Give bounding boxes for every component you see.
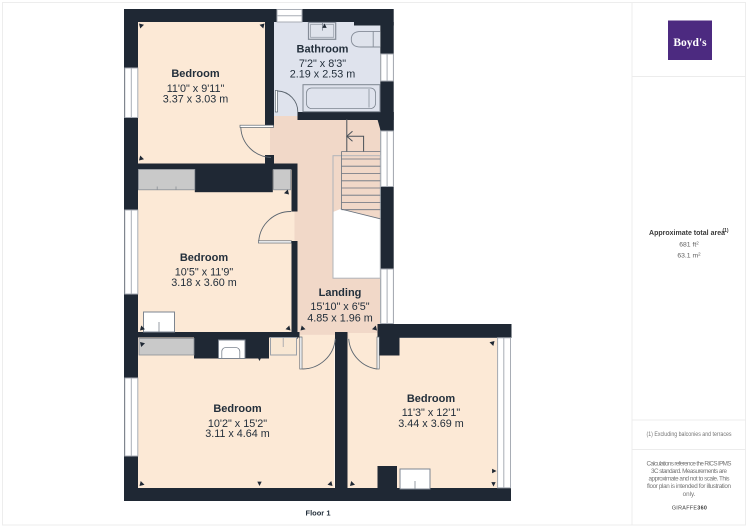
svg-text:only.: only. [683, 491, 696, 498]
svg-text:3.18 x 3.60 m: 3.18 x 3.60 m [171, 277, 236, 289]
svg-text:15'10" x 6'5": 15'10" x 6'5" [310, 301, 369, 313]
svg-text:3.44 x 3.69 m: 3.44 x 3.69 m [398, 418, 463, 430]
svg-text:63.1 m2: 63.1 m2 [677, 252, 701, 260]
svg-text:Approximate total area: Approximate total area [649, 228, 726, 237]
svg-text:Boyd's: Boyd's [673, 37, 707, 49]
svg-text:Landing: Landing [319, 287, 362, 299]
svg-text:Bedroom: Bedroom [213, 403, 262, 415]
svg-text:approximate and not to scale.: approximate and not to scale. This [649, 476, 730, 483]
svg-text:2.19 x 2.53 m: 2.19 x 2.53 m [290, 68, 355, 80]
svg-text:(1): (1) [722, 228, 728, 234]
svg-text:(1) Excluding balconies and te: (1) Excluding balconies and terraces [647, 431, 732, 438]
svg-text:Bedroom: Bedroom [407, 393, 456, 405]
svg-text:4.85 x 1.96 m: 4.85 x 1.96 m [307, 313, 372, 325]
svg-text:Calculations reference the RIC: Calculations reference the RICS IPMS [647, 460, 732, 467]
svg-text:GIRAFFE360: GIRAFFE360 [672, 505, 707, 511]
svg-text:Bedroom: Bedroom [180, 252, 229, 264]
svg-text:681 ft2: 681 ft2 [679, 241, 699, 249]
svg-text:floor plan is intended for ill: floor plan is intended for illustration [647, 483, 731, 490]
svg-text:3.11 x 4.64 m: 3.11 x 4.64 m [205, 428, 270, 440]
svg-text:3.37 x 3.03 m: 3.37 x 3.03 m [163, 94, 228, 106]
svg-text:Floor 1: Floor 1 [305, 509, 330, 518]
svg-text:Bathroom: Bathroom [297, 44, 349, 56]
svg-text:Bedroom: Bedroom [171, 68, 220, 80]
svg-text:3C standard. Measurements are: 3C standard. Measurements are [651, 468, 727, 475]
